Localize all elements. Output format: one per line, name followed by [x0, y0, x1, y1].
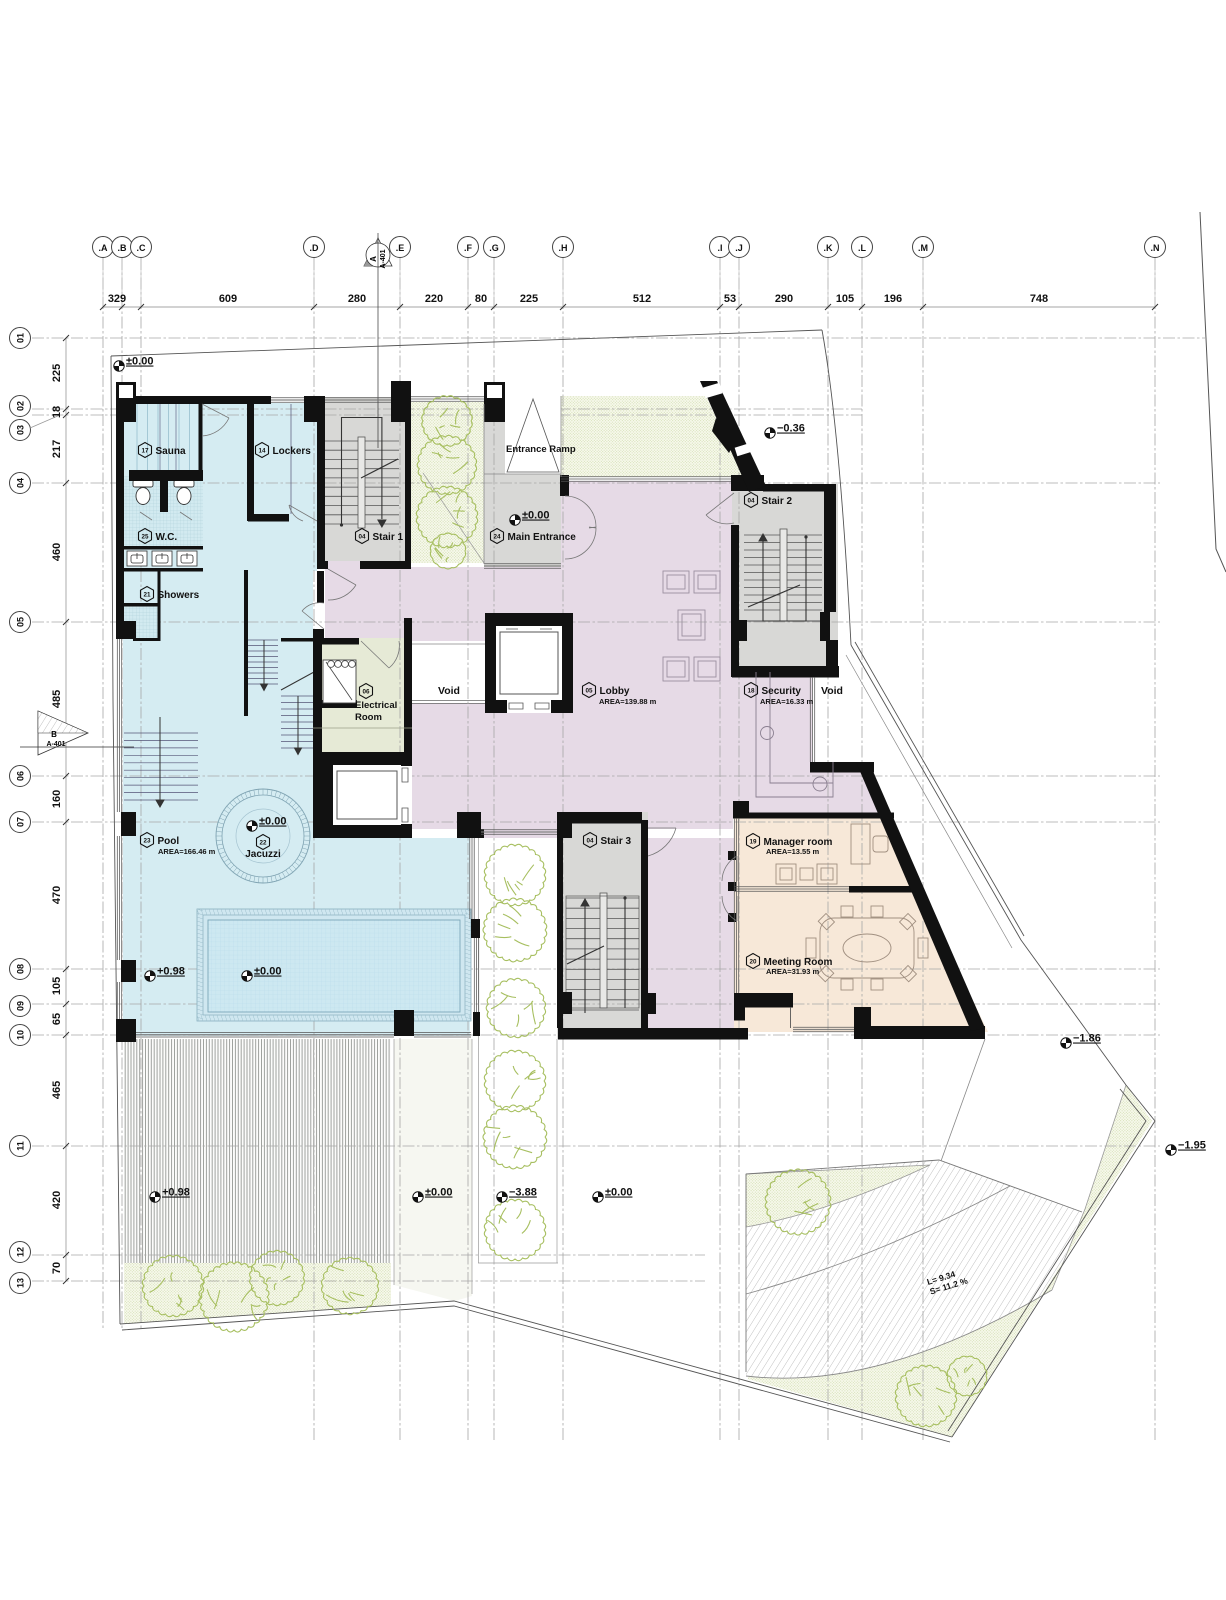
svg-text:512: 512 [633, 293, 651, 305]
svg-text:Main Entrance: Main Entrance [508, 532, 577, 543]
svg-text:13: 13 [16, 1278, 26, 1288]
svg-text:.N: .N [1151, 243, 1160, 253]
svg-text:80: 80 [475, 293, 487, 305]
svg-text:±0.00: ±0.00 [259, 816, 286, 828]
svg-text:02: 02 [16, 401, 26, 411]
svg-text:04: 04 [586, 838, 594, 845]
svg-text:Room: Room [355, 712, 382, 723]
svg-text:105: 105 [51, 977, 63, 995]
svg-text:−0.36: −0.36 [777, 423, 805, 435]
svg-text:Stair 2: Stair 2 [762, 496, 793, 507]
svg-text:Electrical: Electrical [355, 700, 397, 711]
svg-text:08: 08 [16, 964, 26, 974]
svg-text:−1.95: −1.95 [1178, 1140, 1206, 1152]
svg-text:09: 09 [16, 1001, 26, 1011]
svg-text:−3.88: −3.88 [509, 1187, 537, 1199]
svg-text:.J: .J [735, 243, 743, 253]
svg-text:12: 12 [16, 1247, 26, 1257]
svg-text:04: 04 [16, 478, 26, 488]
svg-text:Pool: Pool [158, 836, 180, 847]
svg-text:24: 24 [493, 534, 501, 541]
svg-text:Void: Void [438, 685, 460, 697]
svg-text:225: 225 [51, 364, 63, 382]
svg-text:748: 748 [1030, 293, 1048, 305]
svg-text:+0.98: +0.98 [157, 966, 185, 978]
svg-text:105: 105 [836, 293, 854, 305]
svg-text:25: 25 [141, 534, 149, 541]
svg-text:10: 10 [16, 1030, 26, 1040]
svg-text:290: 290 [775, 293, 793, 305]
svg-text:17: 17 [141, 448, 149, 455]
svg-text:.K: .K [824, 243, 834, 253]
svg-text:14: 14 [258, 448, 266, 455]
svg-text:−1.86: −1.86 [1073, 1033, 1101, 1045]
svg-text:.B: .B [118, 243, 128, 253]
svg-text:65: 65 [51, 1013, 63, 1025]
svg-text:A: A [369, 256, 378, 262]
svg-text:06: 06 [16, 771, 26, 781]
svg-text:217: 217 [51, 440, 63, 458]
svg-text:05: 05 [16, 617, 26, 627]
svg-text:420: 420 [51, 1191, 63, 1209]
svg-text:196: 196 [884, 293, 902, 305]
svg-text:11: 11 [16, 1141, 26, 1151]
svg-text:21: 21 [143, 592, 151, 599]
svg-text:20: 20 [749, 959, 757, 966]
svg-text:19: 19 [749, 839, 757, 846]
svg-text:460: 460 [51, 543, 63, 561]
svg-text:.L: .L [858, 243, 867, 253]
svg-text:04: 04 [747, 498, 755, 505]
svg-text:22: 22 [259, 840, 267, 847]
svg-text:AREA=16.33 m: AREA=16.33 m [760, 697, 813, 706]
svg-text:Jacuzzi: Jacuzzi [245, 849, 281, 860]
svg-text:53: 53 [724, 293, 736, 305]
svg-text:AREA=31.93 m: AREA=31.93 m [766, 967, 819, 976]
svg-text:.F: .F [464, 243, 473, 253]
svg-text:W.C.: W.C. [156, 532, 178, 543]
svg-text:Entrance Ramp: Entrance Ramp [506, 444, 576, 455]
svg-text:.D: .D [310, 243, 320, 253]
svg-text:06: 06 [362, 689, 370, 696]
svg-text:05: 05 [585, 688, 593, 695]
svg-text:.H: .H [559, 243, 568, 253]
svg-text:Lockers: Lockers [273, 446, 312, 457]
svg-text:07: 07 [16, 817, 26, 827]
svg-text:±0.00: ±0.00 [605, 1187, 632, 1199]
svg-text:Showers: Showers [158, 590, 200, 601]
svg-text:18: 18 [51, 406, 63, 418]
svg-text:Stair 1: Stair 1 [373, 532, 404, 543]
svg-text:.M: .M [918, 243, 928, 253]
svg-text:.A: .A [99, 243, 109, 253]
svg-text:AREA=13.55 m: AREA=13.55 m [766, 847, 819, 856]
svg-text:465: 465 [51, 1081, 63, 1099]
svg-text:18: 18 [747, 688, 755, 695]
svg-text:329: 329 [108, 293, 126, 305]
svg-text:±0.00: ±0.00 [522, 510, 549, 522]
svg-text:23: 23 [143, 838, 151, 845]
svg-text:03: 03 [16, 425, 26, 435]
svg-text:160: 160 [51, 790, 63, 808]
svg-text:Security: Security [762, 686, 802, 697]
svg-text:AREA=166.46 m: AREA=166.46 m [158, 847, 216, 856]
svg-text:B: B [51, 730, 57, 739]
svg-text:±0.00: ±0.00 [126, 356, 153, 368]
svg-text:A-401: A-401 [380, 249, 387, 268]
svg-text:225: 225 [520, 293, 538, 305]
svg-text:04: 04 [358, 534, 366, 541]
svg-text:Sauna: Sauna [156, 446, 186, 457]
svg-text:70: 70 [51, 1262, 63, 1274]
svg-text:±0.00: ±0.00 [425, 1187, 452, 1199]
svg-text:Stair 3: Stair 3 [601, 836, 632, 847]
svg-text:470: 470 [51, 886, 63, 904]
svg-text:+0.98: +0.98 [162, 1187, 190, 1199]
svg-text:.G: .G [489, 243, 499, 253]
svg-text:.E: .E [396, 243, 405, 253]
svg-text:485: 485 [51, 690, 63, 708]
svg-text:.C: .C [137, 243, 147, 253]
svg-text:AREA=139.88 m: AREA=139.88 m [599, 697, 657, 706]
svg-text:01: 01 [16, 333, 26, 343]
svg-text:Lobby: Lobby [600, 686, 630, 697]
svg-text:609: 609 [219, 293, 237, 305]
svg-text:Void: Void [821, 685, 843, 697]
svg-text:.I: .I [717, 243, 722, 253]
svg-text:±0.00: ±0.00 [254, 966, 281, 978]
svg-text:280: 280 [348, 293, 366, 305]
svg-text:220: 220 [425, 293, 443, 305]
